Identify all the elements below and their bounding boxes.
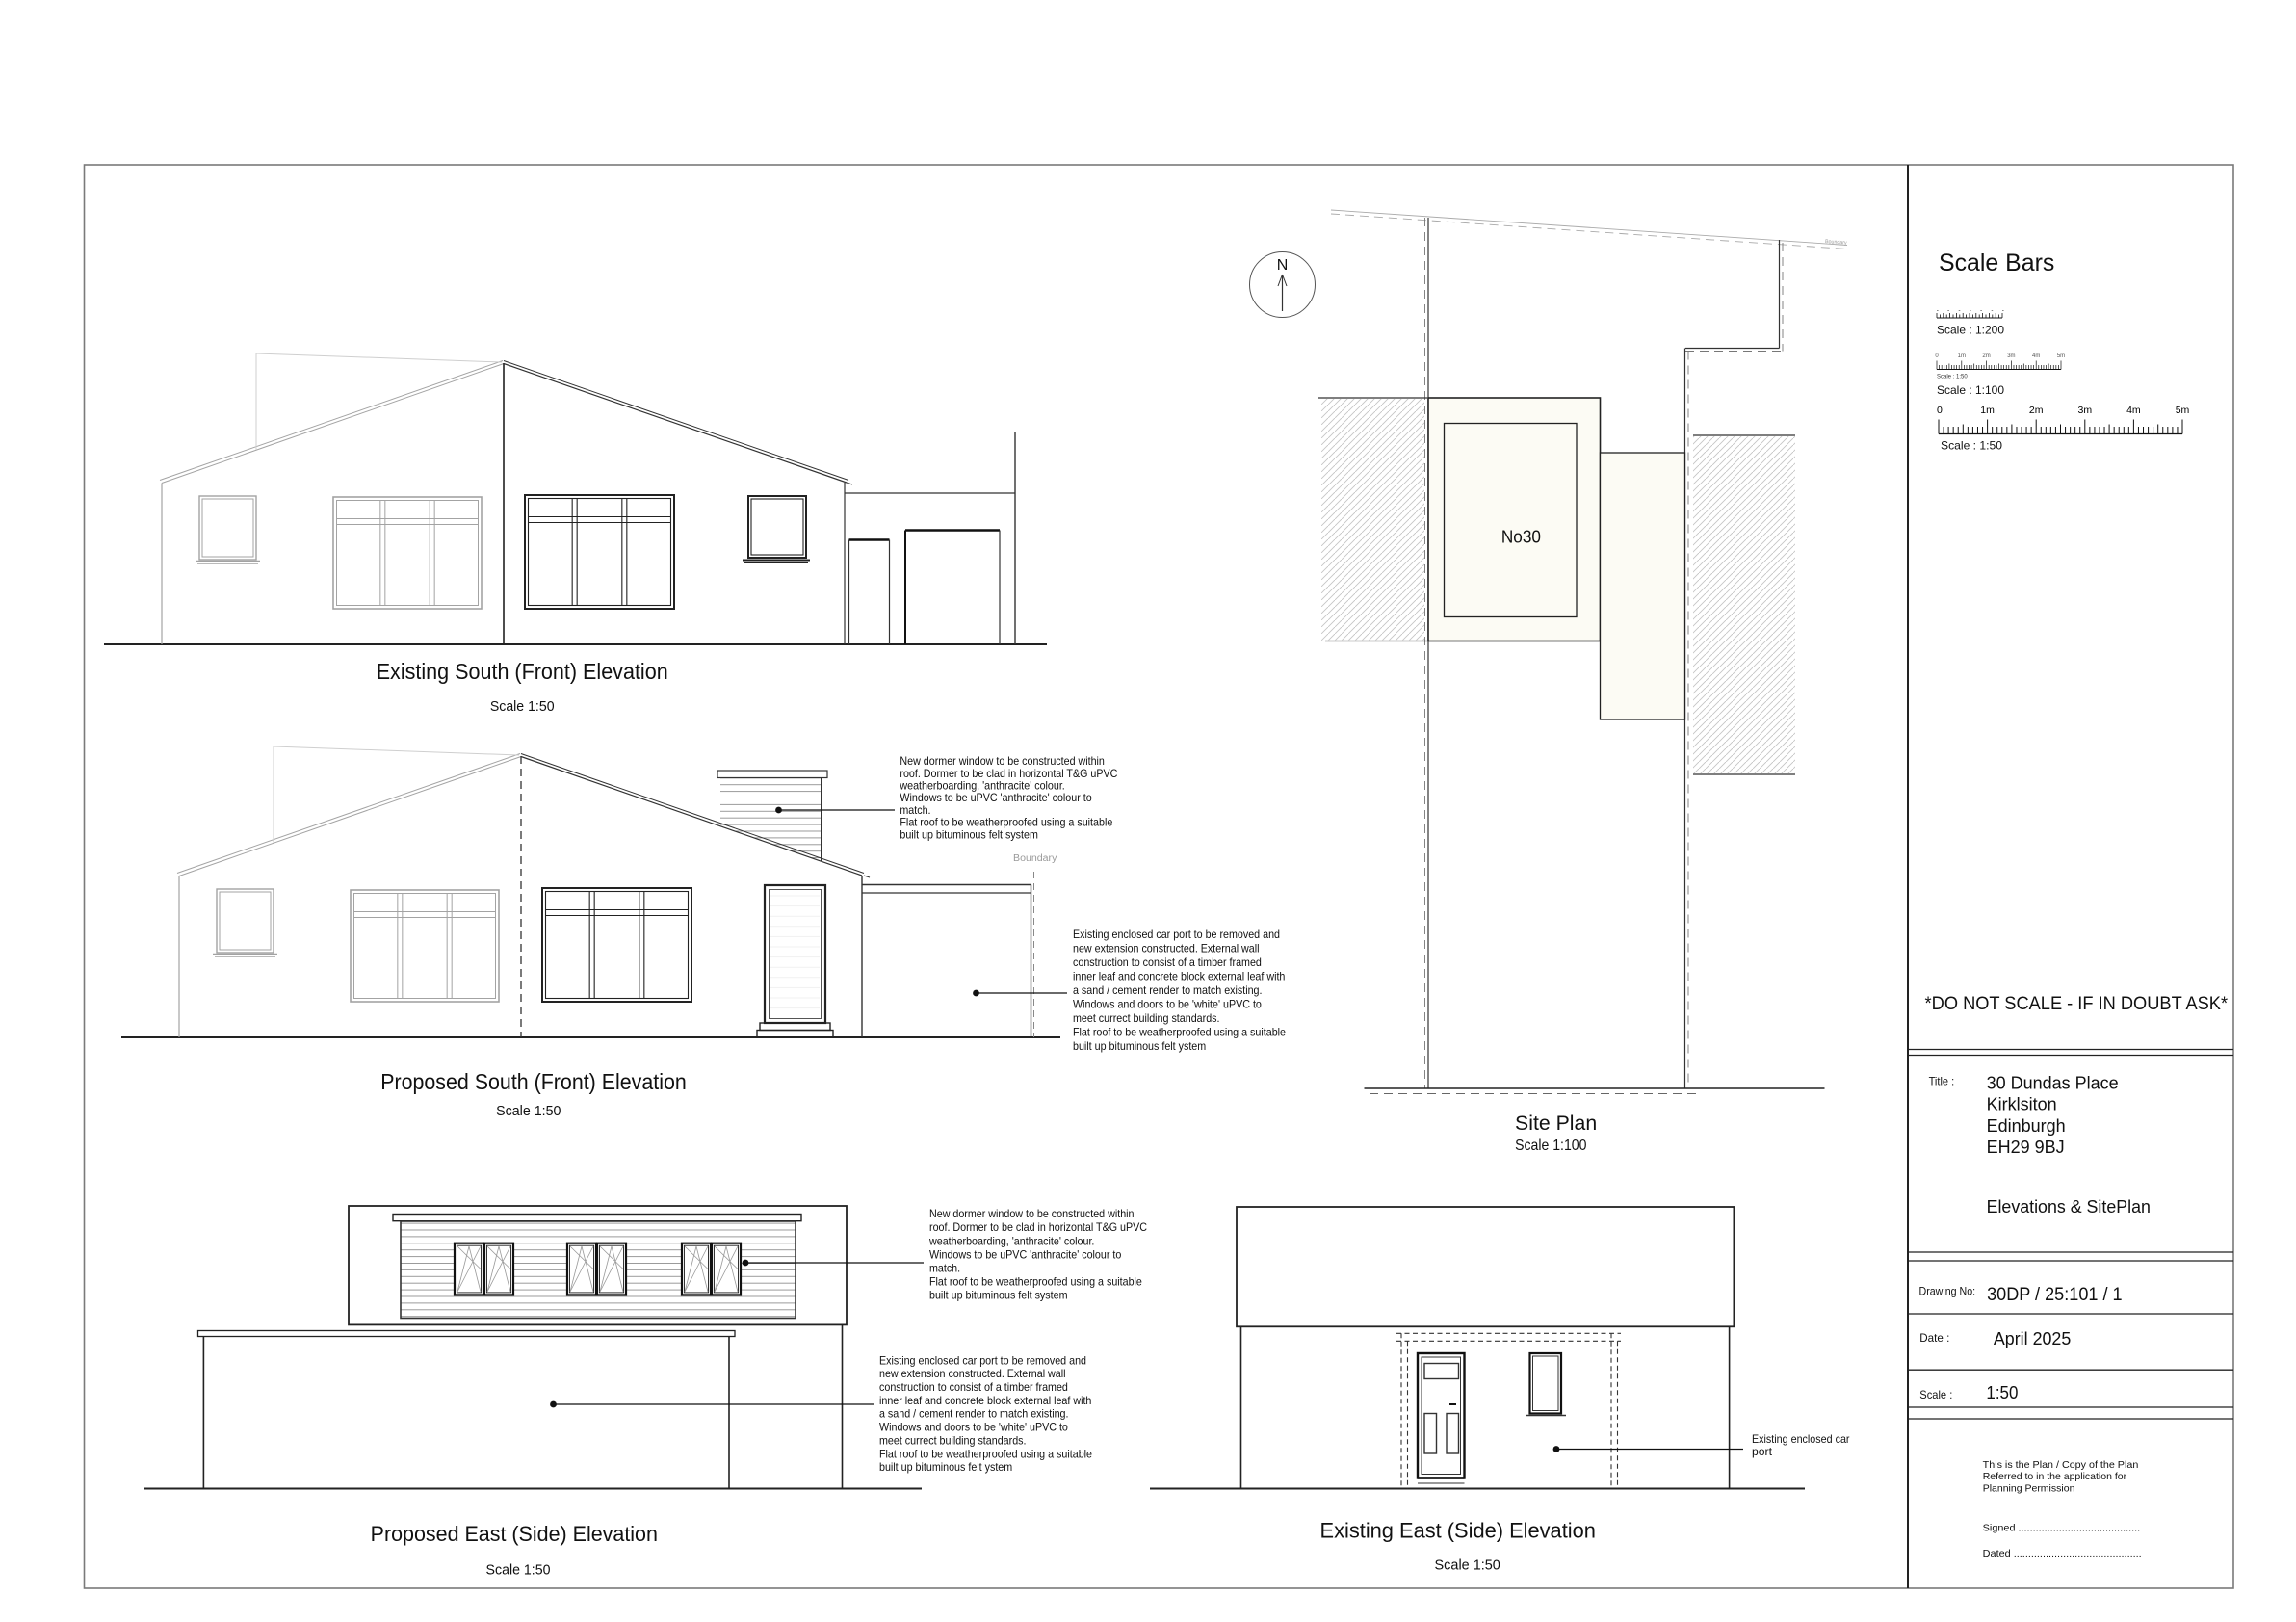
svg-text:Scale :: Scale : bbox=[1919, 1389, 1952, 1401]
svg-text:4m: 4m bbox=[2032, 353, 2040, 359]
svg-text:Planning Permission: Planning Permission bbox=[1983, 1482, 2075, 1494]
svg-text:April 2025: April 2025 bbox=[1994, 1328, 2071, 1348]
svg-text:weatherboarding, 'anthracite': weatherboarding, 'anthracite' colour. bbox=[928, 1234, 1094, 1247]
svg-text:a sand / cement render to matc: a sand / cement render to match existing… bbox=[879, 1407, 1069, 1421]
svg-text:Drawing No:: Drawing No: bbox=[1919, 1285, 1976, 1297]
svg-text:Dated ........................: Dated ..................................… bbox=[1983, 1548, 2142, 1559]
svg-text:4m: 4m bbox=[2126, 405, 2141, 416]
svg-text:Existing South (Front) Elevati: Existing South (Front) Elevation bbox=[377, 659, 668, 684]
svg-text:Site Plan: Site Plan bbox=[1515, 1112, 1597, 1135]
svg-text:*DO NOT SCALE - IF IN DOUBT AS: *DO NOT SCALE - IF IN DOUBT ASK* bbox=[1925, 994, 2229, 1014]
svg-text:Scale : 1:200: Scale : 1:200 bbox=[1937, 324, 2004, 337]
svg-text:30 Dundas Place: 30 Dundas Place bbox=[1987, 1073, 2119, 1092]
svg-text:Existing enclosed car: Existing enclosed car bbox=[1752, 1432, 1850, 1446]
svg-text:Windows to be uPVC 'anthracite: Windows to be uPVC 'anthracite' colour t… bbox=[929, 1247, 1122, 1261]
svg-text:meet currect building standard: meet currect building standards. bbox=[1073, 1011, 1220, 1025]
svg-text:Boundary: Boundary bbox=[1013, 853, 1057, 864]
svg-text:Windows and doors to be 'white: Windows and doors to be 'white' uPVC to bbox=[879, 1421, 1068, 1434]
svg-text:a sand / cement render to matc: a sand / cement render to match existing… bbox=[1073, 983, 1263, 997]
svg-text:Flat roof to be weatherproofed: Flat roof to be weatherproofed using a s… bbox=[929, 1275, 1142, 1289]
svg-text:3m: 3m bbox=[2007, 353, 2015, 359]
svg-text:roof. Dormer to be clad in hor: roof. Dormer to be clad in horizontal T&… bbox=[929, 1220, 1147, 1234]
svg-text:2m: 2m bbox=[2029, 405, 2044, 416]
svg-text:New dormer window to be constr: New dormer window to be constructed with… bbox=[929, 1207, 1135, 1220]
svg-text:Proposed South (Front) Elevati: Proposed South (Front) Elevation bbox=[380, 1069, 687, 1094]
svg-text:new extension constructed. Ext: new extension constructed. External wall bbox=[879, 1367, 1066, 1380]
svg-text:Scale : 1:100: Scale : 1:100 bbox=[1937, 383, 2004, 397]
svg-text:Edinburgh: Edinburgh bbox=[1987, 1116, 2066, 1136]
svg-text:Scale 1:50: Scale 1:50 bbox=[496, 1103, 561, 1119]
svg-text:Elevations & SitePlan: Elevations & SitePlan bbox=[1987, 1197, 2151, 1216]
svg-text:Scale 1:50: Scale 1:50 bbox=[490, 698, 555, 715]
svg-text:Signed .......................: Signed .................................… bbox=[1983, 1523, 2141, 1534]
svg-text:Scale : 1:50: Scale : 1:50 bbox=[1941, 439, 2002, 453]
svg-text:Flat roof to be weatherproofed: Flat roof to be weatherproofed using a s… bbox=[1073, 1026, 1286, 1039]
svg-text:No30: No30 bbox=[1501, 527, 1541, 547]
svg-text:Date :: Date : bbox=[1919, 1332, 1949, 1345]
svg-text:1m: 1m bbox=[1980, 405, 1995, 416]
svg-text:Scale Bars: Scale Bars bbox=[1939, 249, 2054, 276]
svg-text:1:50: 1:50 bbox=[1986, 1383, 2018, 1402]
svg-text:3m: 3m bbox=[2078, 405, 2093, 416]
svg-text:construction to consist of a t: construction to consist of a timber fram… bbox=[879, 1380, 1068, 1394]
svg-text:Scale 1:50: Scale 1:50 bbox=[1435, 1557, 1500, 1574]
svg-text:1m: 1m bbox=[1958, 353, 1966, 359]
svg-text:Scale 1:50: Scale 1:50 bbox=[486, 1561, 551, 1578]
svg-text:construction to consist of a t: construction to consist of a timber fram… bbox=[1073, 955, 1262, 969]
svg-text:Scale : 1:50: Scale : 1:50 bbox=[1937, 375, 1968, 380]
svg-text:This is the Plan / Copy of the: This is the Plan / Copy of the Plan bbox=[1983, 1459, 2139, 1471]
svg-text:built up bituminous felt syste: built up bituminous felt system bbox=[900, 827, 1038, 841]
svg-text:30DP / 25:101 / 1: 30DP / 25:101 / 1 bbox=[1987, 1285, 2123, 1305]
svg-text:N: N bbox=[1277, 257, 1289, 274]
svg-text:0: 0 bbox=[1937, 405, 1943, 416]
svg-text:meet currect building standard: meet currect building standards. bbox=[879, 1433, 1027, 1447]
svg-text:Scale 1:100: Scale 1:100 bbox=[1515, 1138, 1586, 1154]
svg-text:built up bituminous felt ystem: built up bituminous felt ystem bbox=[879, 1460, 1012, 1474]
svg-text:built up bituminous felt ystem: built up bituminous felt ystem bbox=[1073, 1039, 1206, 1053]
svg-text:inner leaf and concrete block: inner leaf and concrete block external l… bbox=[1073, 970, 1285, 983]
svg-text:Referred to in the application: Referred to in the application for bbox=[1983, 1471, 2127, 1482]
svg-text:port: port bbox=[1752, 1445, 1773, 1458]
svg-text:Existing enclosed car port to: Existing enclosed car port to be removed… bbox=[1073, 928, 1280, 941]
svg-text:2m: 2m bbox=[1982, 353, 1990, 359]
svg-text:Proposed East (Side) Elevation: Proposed East (Side) Elevation bbox=[371, 1522, 658, 1546]
svg-text:Existing East (Side) Elevation: Existing East (Side) Elevation bbox=[1320, 1519, 1596, 1543]
svg-text:Kirklsiton: Kirklsiton bbox=[1987, 1095, 2057, 1114]
svg-text:EH29 9BJ: EH29 9BJ bbox=[1987, 1138, 2065, 1157]
svg-text:Windows and doors to be 'white: Windows and doors to be 'white' uPVC to bbox=[1073, 998, 1262, 1011]
svg-text:inner leaf and concrete block: inner leaf and concrete block external l… bbox=[879, 1394, 1091, 1407]
svg-text:new extension constructed. Ext: new extension constructed. External wall bbox=[1073, 942, 1260, 955]
svg-text:built up bituminous felt syste: built up bituminous felt system bbox=[929, 1289, 1068, 1302]
svg-text:Existing enclosed car port to: Existing enclosed car port to be removed… bbox=[879, 1353, 1086, 1367]
svg-text:Title :: Title : bbox=[1929, 1075, 1955, 1088]
svg-text:5m: 5m bbox=[2176, 405, 2190, 416]
svg-text:5m: 5m bbox=[2057, 353, 2065, 359]
svg-text:match.: match. bbox=[929, 1262, 960, 1275]
svg-text:Flat roof to be weatherproofed: Flat roof to be weatherproofed using a s… bbox=[879, 1447, 1092, 1460]
